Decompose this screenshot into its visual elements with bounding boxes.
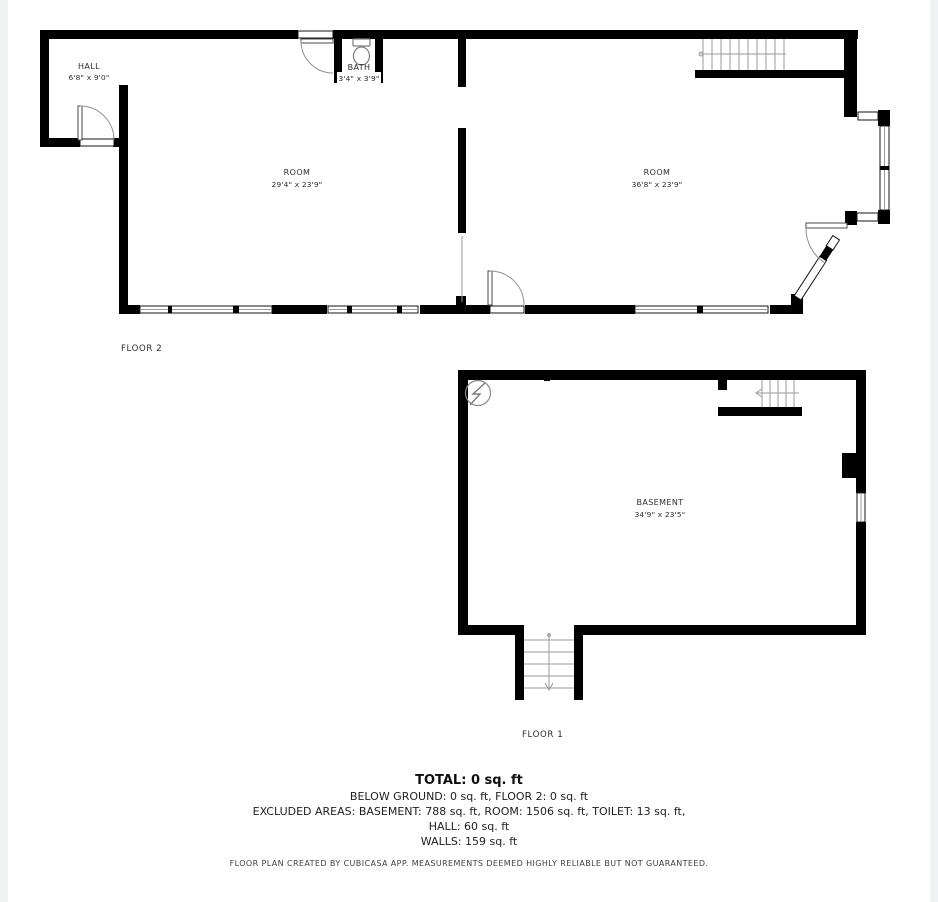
bath-door (298, 31, 333, 73)
room-left-dims: 29'4" x 23'9" (272, 180, 323, 189)
floor2-staircase (699, 39, 786, 70)
hall-label: HALL (78, 62, 100, 71)
floor1-plan: BASEMENT 34'9" x 23'5" FLOOR 1 (458, 370, 866, 740)
room-right-label: ROOM (644, 168, 671, 177)
basement-label: BASEMENT (636, 498, 683, 507)
disclaimer-text: FLOOR PLAN CREATED BY CUBICASA APP. MEAS… (0, 859, 938, 868)
floor2-caption: FLOOR 2 (121, 344, 162, 354)
toilet-icon (353, 39, 370, 65)
hall-dims: 6'8" x 9'0" (69, 73, 110, 82)
area-summary: TOTAL: 0 sq. ft BELOW GROUND: 0 sq. ft, … (0, 773, 938, 868)
summary-line-walls: WALLS: 159 sq. ft (0, 835, 938, 850)
bath-label: BATH (348, 63, 371, 72)
room-right-dims: 36'8" x 23'9" (632, 180, 683, 189)
basement-top-staircase (756, 380, 799, 407)
bath-dims: 3'4" x 3'9" (339, 74, 380, 83)
floor2-walls (40, 30, 890, 314)
floor1-windows (857, 493, 865, 522)
room-left-label: ROOM (284, 168, 311, 177)
electrical-panel-icon (466, 381, 491, 406)
summary-line-excluded: EXCLUDED AREAS: BASEMENT: 788 sq. ft, RO… (0, 805, 938, 820)
floor1-caption: FLOOR 1 (522, 730, 563, 740)
floor2-plan: HALL 6'8" x 9'0" BATH 3'4" x 3'9" ROOM 2… (40, 30, 890, 354)
floor-plan-svg: HALL 6'8" x 9'0" BATH 3'4" x 3'9" ROOM 2… (0, 0, 938, 760)
floor1-walls (458, 370, 866, 700)
floorplan-canvas: HALL 6'8" x 9'0" BATH 3'4" x 3'9" ROOM 2… (0, 0, 938, 902)
basement-dims: 34'9" x 23'5" (635, 510, 686, 519)
hall-door (78, 106, 114, 146)
floor2-windows (140, 112, 890, 314)
summary-total: TOTAL: 0 sq. ft (0, 773, 938, 788)
bottom-door (488, 271, 524, 313)
summary-line-hall: HALL: 60 sq. ft (0, 820, 938, 835)
basement-bottom-staircase (524, 633, 574, 690)
summary-line-floors: BELOW GROUND: 0 sq. ft, FLOOR 2: 0 sq. f… (0, 790, 938, 805)
